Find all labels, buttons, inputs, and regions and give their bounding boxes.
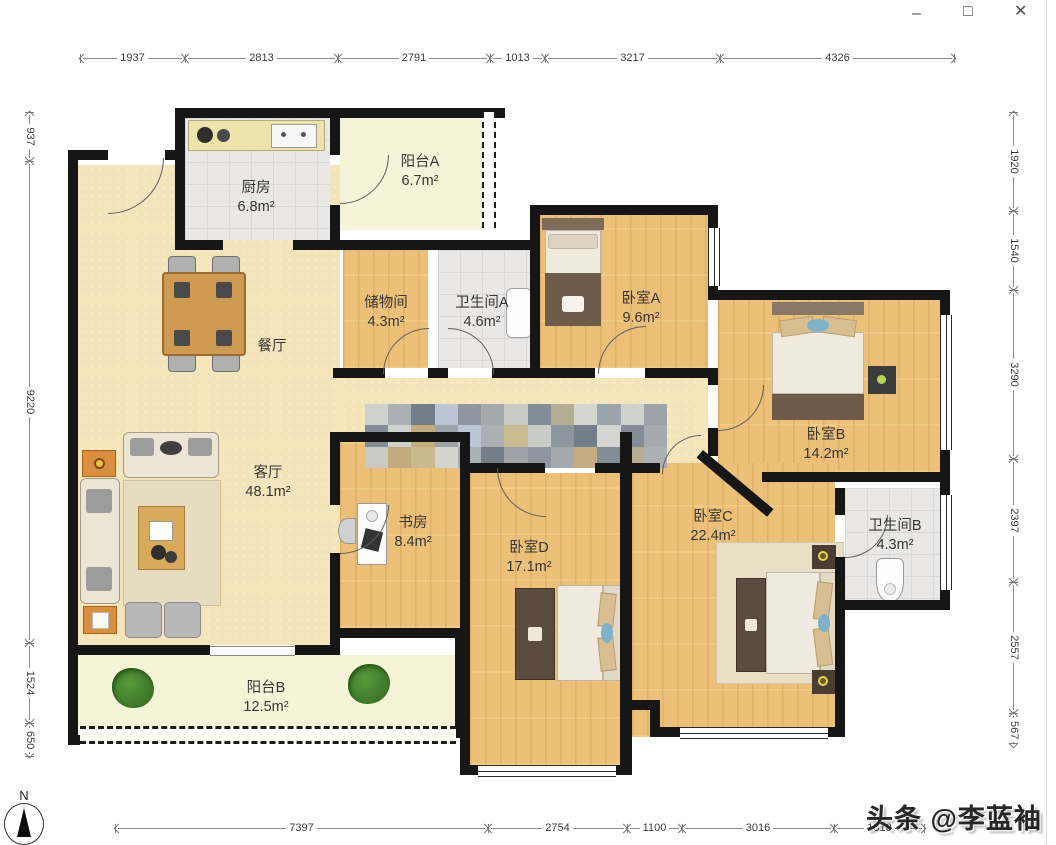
room-name: 卧室C <box>690 508 735 527</box>
room-label-bath-a: 卫生间A4.6m² <box>455 294 508 332</box>
dimension-value: 2397 <box>1009 505 1020 535</box>
room-name: 阳台A <box>401 153 440 172</box>
minimize-icon[interactable]: – <box>912 6 921 22</box>
ottoman <box>164 602 201 638</box>
room-label-bedroom-a: 卧室A9.6m² <box>622 290 661 328</box>
side-table <box>83 606 117 634</box>
dimension-value: 9220 <box>25 387 36 417</box>
lamp <box>818 676 828 686</box>
room-label-living: 客厅48.1m² <box>245 464 290 502</box>
dimension-segment: 3217 <box>545 53 720 64</box>
decor <box>745 619 757 631</box>
dimension-segment: 1524 <box>25 643 36 723</box>
nightstand <box>812 545 836 569</box>
ottoman <box>125 602 162 638</box>
wall-segment <box>330 628 465 638</box>
north-label: N <box>4 788 44 803</box>
room-area: 4.3m² <box>364 313 408 332</box>
nightstand <box>812 670 836 694</box>
bed-bedroom-d <box>557 585 621 681</box>
faucet <box>301 132 306 137</box>
wall-segment <box>530 368 595 378</box>
bed-bedroom-b <box>772 302 864 420</box>
wall-segment <box>68 150 78 745</box>
wall-segment <box>295 645 340 655</box>
room-area: 22.4m² <box>690 527 735 546</box>
room-label-bedroom-c: 卧室C22.4m² <box>690 508 735 546</box>
decor <box>94 458 105 469</box>
dimension-segment: 2754 <box>488 823 627 834</box>
sofa-cushion <box>86 489 112 513</box>
bed-bedroom-a <box>542 218 604 326</box>
wall-segment <box>708 428 718 456</box>
dimension-segment: 1100 <box>627 823 682 834</box>
window-border <box>1046 0 1047 845</box>
compass-needle-icon <box>17 808 31 837</box>
dimension-value: 7397 <box>286 823 316 834</box>
dimension-segment: 9220 <box>25 161 36 643</box>
kitchen-counter <box>188 120 325 151</box>
dimension-segment: 1540 <box>1009 211 1020 290</box>
bed-fold <box>562 296 584 312</box>
dimension-segment: 1937 <box>80 53 185 64</box>
wall-segment <box>708 290 950 300</box>
placemat <box>216 282 232 298</box>
wall-segment <box>835 610 845 737</box>
wall-segment <box>293 240 540 250</box>
bed-bedroom-c <box>766 572 838 674</box>
bed-duvet <box>772 332 864 394</box>
window <box>708 228 720 286</box>
bed-blanket <box>772 394 864 420</box>
wall-segment <box>340 432 460 442</box>
dimension-line-right: 1920 1540 3290 2397 2557 567 <box>1006 112 1022 744</box>
faucet <box>281 132 286 137</box>
room-area: 4.3m² <box>868 536 921 555</box>
wall-segment <box>632 463 660 473</box>
wall-segment <box>330 432 340 505</box>
decor <box>92 612 109 629</box>
dimension-value: 1013 <box>502 53 532 64</box>
room-label-kitchen: 厨房6.8m² <box>237 179 274 217</box>
wall-segment <box>68 735 80 745</box>
dimension-value: 2813 <box>246 53 276 64</box>
room-area: 8.4m² <box>394 533 431 552</box>
room-name: 卧室A <box>622 290 661 309</box>
room-name: 卧室D <box>506 539 551 558</box>
dimension-value: 3016 <box>743 823 773 834</box>
bed-duvet <box>557 585 603 681</box>
wall-segment <box>455 638 465 738</box>
lamp <box>818 551 828 561</box>
dimension-segment: 1013 <box>490 53 545 64</box>
decor <box>877 375 886 384</box>
wall-segment <box>175 240 223 250</box>
placemat <box>174 282 190 298</box>
room-area: 4.6m² <box>455 313 508 332</box>
kitchen-sink <box>271 124 317 148</box>
sofa <box>80 478 120 604</box>
window <box>940 315 952 450</box>
window <box>680 727 828 739</box>
dimension-segment: 2557 <box>1009 582 1020 713</box>
room-name: 阳台B <box>243 679 288 698</box>
room-area: 9.6m² <box>622 309 661 328</box>
room-name: 储物间 <box>364 294 408 313</box>
dresser <box>736 578 766 672</box>
dimension-value: 4326 <box>822 53 852 64</box>
wall-segment <box>835 488 845 515</box>
wall-segment <box>530 215 540 378</box>
room-name: 客厅 <box>245 464 290 483</box>
room-label-bedroom-d: 卧室D17.1m² <box>506 539 551 577</box>
window <box>478 765 616 777</box>
dimension-value: 1540 <box>1009 235 1020 265</box>
dimension-segment: 937 <box>25 112 36 161</box>
bed-pillow <box>548 234 598 249</box>
dimension-value: 2791 <box>399 53 429 64</box>
room-label-storage: 储物间4.3m² <box>364 294 408 332</box>
wall-segment <box>708 368 718 385</box>
room-area: 48.1m² <box>245 483 290 502</box>
wall-segment <box>835 600 945 610</box>
dimension-segment: 2791 <box>338 53 490 64</box>
decor <box>528 627 542 641</box>
placemat <box>216 330 232 346</box>
dimension-value: 3290 <box>1009 359 1020 389</box>
maximize-icon[interactable]: □ <box>963 4 973 20</box>
wall-segment <box>175 108 185 250</box>
room-name: 卫生间B <box>868 517 921 536</box>
bed-duvet <box>766 572 820 674</box>
bed-headboard <box>772 302 864 315</box>
room-name: 书房 <box>394 514 431 533</box>
coffee-table <box>138 506 185 570</box>
room-area: 6.7m² <box>401 172 440 191</box>
bed-headboard <box>542 218 604 230</box>
room-name: 卫生间A <box>455 294 508 313</box>
dimension-value: 1937 <box>117 53 147 64</box>
close-icon[interactable]: ✕ <box>1014 4 1027 20</box>
watermark-text: 头条 @李蓝袖 <box>866 797 1042 836</box>
sofa <box>123 432 219 478</box>
dimension-value: 1100 <box>640 823 670 834</box>
wall-segment <box>175 108 505 118</box>
window <box>940 495 952 590</box>
dimension-segment: 650 <box>25 723 36 757</box>
room-name: 餐厅 <box>258 338 287 357</box>
dimension-segment: 2397 <box>1009 459 1020 582</box>
north-compass: N <box>4 788 44 845</box>
room-label-study: 书房8.4m² <box>394 514 431 552</box>
dimension-value: 3217 <box>617 53 647 64</box>
floor-plan-viewer: – □ ✕ <box>0 0 1056 845</box>
balcony-dashed-edge <box>80 726 456 744</box>
sofa-cushion <box>160 441 182 455</box>
decor <box>151 545 166 560</box>
stove-burner <box>217 129 230 142</box>
dimension-line-bottom: 7397 2754 1100 3016 1810 <box>115 820 925 836</box>
wall-segment <box>333 368 385 378</box>
dimension-segment: 3016 <box>682 823 834 834</box>
stove-burner <box>197 127 213 143</box>
washbasin <box>506 288 532 338</box>
dimension-segment: 1920 <box>1009 112 1020 211</box>
bed-cushion <box>818 614 830 632</box>
toilet-bowl <box>884 583 896 595</box>
room-area: 6.8m² <box>237 198 274 217</box>
decor <box>165 551 177 563</box>
wall-segment <box>595 463 632 473</box>
wall-segment <box>68 645 210 655</box>
wall-segment <box>68 150 108 160</box>
room-label-balcony-b: 阳台B12.5m² <box>243 679 288 717</box>
dimension-segment: 567 <box>1009 713 1020 744</box>
room-label-dining: 餐厅 <box>258 338 287 357</box>
room-name: 卧室B <box>803 426 848 445</box>
dimension-value: 2754 <box>542 823 572 834</box>
dresser <box>515 588 555 680</box>
room-area: 12.5m² <box>243 698 288 717</box>
compass-circle <box>4 803 44 845</box>
sliding-door <box>210 646 295 656</box>
toilet <box>876 558 904 602</box>
sofa-cushion <box>130 438 154 456</box>
wall-segment <box>762 472 950 482</box>
dimension-segment: 3290 <box>1009 290 1020 459</box>
room-area: 14.2m² <box>803 445 848 464</box>
dimension-segment: 2813 <box>185 53 338 64</box>
sofa-cushion <box>86 567 112 591</box>
side-table <box>82 450 116 477</box>
bed-cushion <box>601 623 613 643</box>
dimension-value: 1920 <box>1009 146 1020 176</box>
nightstand <box>868 366 896 394</box>
decor <box>149 521 173 541</box>
room-label-bath-b: 卫生间B4.3m² <box>868 517 921 555</box>
wall-segment <box>428 368 448 378</box>
dimension-value: 2557 <box>1009 632 1020 662</box>
wall-segment <box>530 205 718 215</box>
dimension-value: 937 <box>25 124 36 148</box>
dimension-line-top: 1937 2813 2791 1013 3217 4326 <box>80 50 955 66</box>
bed-cushion <box>807 319 829 332</box>
room-label-balcony-a: 阳台A6.7m² <box>401 153 440 191</box>
wall-segment <box>620 432 632 775</box>
dimension-segment: 7397 <box>115 823 488 834</box>
room-label-bedroom-b: 卧室B14.2m² <box>803 426 848 464</box>
dimension-value: 1524 <box>25 668 36 698</box>
balcony-dashed-wall <box>482 112 496 228</box>
dimension-line-left: 937 9220 1524 650 <box>22 112 38 757</box>
room-area: 17.1m² <box>506 558 551 577</box>
placemat <box>174 330 190 346</box>
wall-segment <box>330 118 340 155</box>
dimension-segment: 4326 <box>720 53 955 64</box>
sofa-cushion <box>188 438 212 456</box>
plant <box>112 668 154 708</box>
room-name: 厨房 <box>237 179 274 198</box>
dining-table <box>162 272 246 356</box>
